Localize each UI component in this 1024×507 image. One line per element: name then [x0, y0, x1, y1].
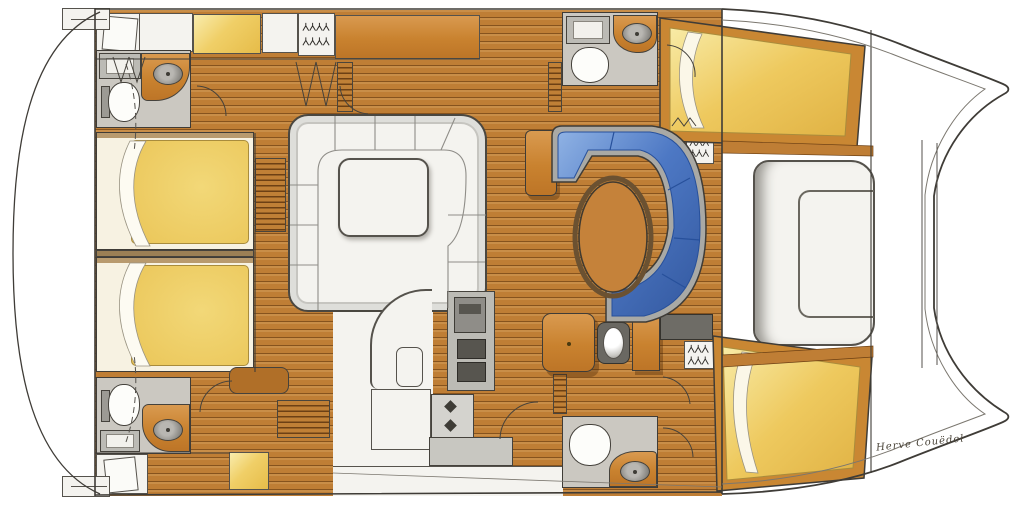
catamaran-floorplan: Herve Couëdel	[0, 0, 1024, 507]
dinette-table	[575, 178, 651, 296]
double-berth-aft-starboard	[660, 18, 865, 147]
hull-outline-layer	[0, 0, 1024, 507]
sheet-fold	[119, 141, 150, 246]
sheet-fold	[119, 263, 150, 366]
settee-seams	[290, 116, 486, 310]
stern-outline	[13, 12, 136, 494]
